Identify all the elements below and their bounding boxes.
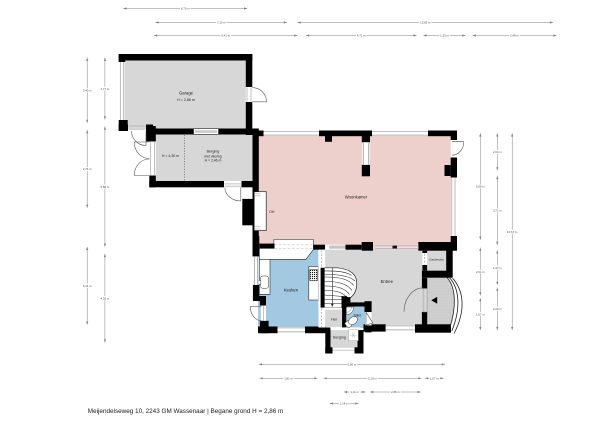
svg-text:Garderobe: Garderobe xyxy=(429,257,444,261)
svg-text:6,70 m: 6,70 m xyxy=(181,7,190,11)
svg-text:1,07 m: 1,07 m xyxy=(476,312,485,316)
svg-text:4,35 m: 4,35 m xyxy=(101,296,110,300)
svg-text:Keuken: Keuken xyxy=(284,288,299,293)
svg-text:Berging: Berging xyxy=(333,335,346,339)
svg-text:H = 2,86 m: H = 2,86 m xyxy=(177,98,195,102)
svg-text:1,81 m: 1,81 m xyxy=(284,377,293,381)
svg-text:6,56 m: 6,56 m xyxy=(348,363,357,367)
svg-text:2,61 m: 2,61 m xyxy=(476,270,485,274)
svg-text:2,74 m: 2,74 m xyxy=(83,167,92,171)
svg-text:4,14 m: 4,14 m xyxy=(83,284,92,288)
svg-text:5,88 m: 5,88 m xyxy=(101,185,110,189)
svg-text:2,04 m: 2,04 m xyxy=(493,150,502,154)
svg-text:Berging: Berging xyxy=(207,149,220,153)
svg-text:13,83 m: 13,83 m xyxy=(420,21,431,25)
svg-text:2,48 m: 2,48 m xyxy=(510,34,519,38)
svg-text:5,41 m: 5,41 m xyxy=(221,34,230,38)
svg-text:7,10 m: 7,10 m xyxy=(217,21,226,25)
svg-text:5,10 m: 5,10 m xyxy=(368,377,377,381)
svg-text:H = 2,46 m: H = 2,46 m xyxy=(205,159,222,163)
svg-text:1,14 m: 1,14 m xyxy=(340,402,349,406)
svg-text:OH: OH xyxy=(269,210,275,214)
svg-text:10,67 m: 10,67 m xyxy=(507,230,518,234)
svg-text:1,23 m: 1,23 m xyxy=(440,34,449,38)
svg-text:1,11 m: 1,11 m xyxy=(350,390,359,394)
svg-text:Entree: Entree xyxy=(381,279,394,284)
svg-text:Toilet: Toilet xyxy=(353,313,361,317)
svg-text:2,86 m: 2,86 m xyxy=(391,390,400,394)
svg-text:Meijendelseweg 10, 2243 GM Was: Meijendelseweg 10, 2243 GM Wassenaar | B… xyxy=(88,408,284,415)
svg-text:2,77 m: 2,77 m xyxy=(101,87,110,91)
svg-text:H = 4,30 m: H = 4,30 m xyxy=(162,154,179,158)
svg-text:2,29 m: 2,29 m xyxy=(493,307,502,311)
svg-text:1,47 m: 1,47 m xyxy=(493,266,502,270)
svg-text:1,07 m: 1,07 m xyxy=(430,377,439,381)
svg-text:Garage: Garage xyxy=(179,90,194,95)
svg-text:3,71 m: 3,71 m xyxy=(493,209,502,213)
svg-text:Woonkamer: Woonkamer xyxy=(345,195,368,200)
svg-text:3,40 m: 3,40 m xyxy=(83,89,92,93)
svg-text:Hal: Hal xyxy=(331,317,337,321)
svg-text:4,71 m: 4,71 m xyxy=(357,34,366,38)
svg-text:5,88 m: 5,88 m xyxy=(476,185,485,189)
